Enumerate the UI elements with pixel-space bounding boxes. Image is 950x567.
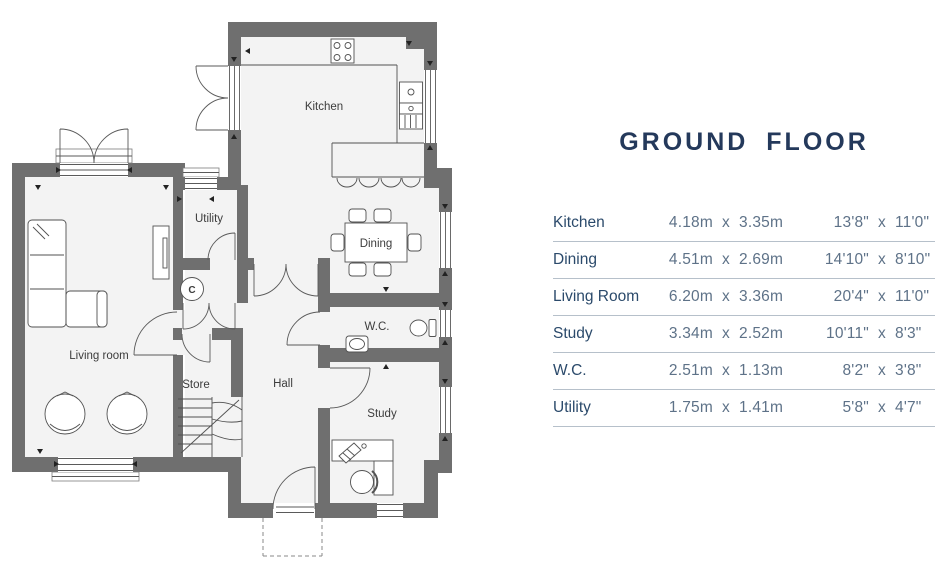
patio-door-threshold xyxy=(228,66,241,130)
imperial-width: 13'8" xyxy=(821,214,869,232)
dimension-row: W.C. 2.51m x 1.13m 8'2" x 3'8" xyxy=(553,353,935,390)
imperial-depth: 11'0" xyxy=(895,214,935,232)
imperial-width: 8'2" xyxy=(821,362,869,380)
porch-outline xyxy=(263,518,322,556)
hob xyxy=(331,39,354,63)
dimension-separator: x xyxy=(869,214,895,232)
metric-depth: 1.41m xyxy=(739,399,797,417)
room-name: Kitchen xyxy=(553,214,655,232)
dimensions-panel: GROUND FLOOR Kitchen 4.18m x 3.35m 13'8"… xyxy=(553,128,935,427)
dining-label: Dining xyxy=(360,238,393,250)
dimension-separator: x xyxy=(713,325,739,343)
dimension-separator: x xyxy=(869,399,895,417)
dimension-row: Living Room 6.20m x 3.36m 20'4" x 11'0" xyxy=(553,279,935,316)
metric-width: 6.20m xyxy=(655,288,713,306)
hall-label: Hall xyxy=(273,378,293,390)
imperial-depth: 11'0" xyxy=(895,288,935,306)
imperial-width: 5'8" xyxy=(821,399,869,417)
kitchen-patio-doors xyxy=(196,66,228,130)
floorplan-page: Kitchen Utility Dining Living room W.C. … xyxy=(0,0,950,567)
imperial-width: 20'4" xyxy=(821,288,869,306)
dimension-row: Kitchen 4.18m x 3.35m 13'8" x 11'0" xyxy=(553,205,935,242)
metric-depth: 1.13m xyxy=(739,362,797,380)
dimension-separator: x xyxy=(713,399,739,417)
toilet xyxy=(410,320,436,337)
wc-label: W.C. xyxy=(365,321,390,333)
room-name: Dining xyxy=(553,251,655,269)
metric-depth: 2.69m xyxy=(739,251,797,269)
metric-width: 4.18m xyxy=(655,214,713,232)
metric-width: 4.51m xyxy=(655,251,713,269)
kitchen-label: Kitchen xyxy=(305,101,343,113)
imperial-depth: 4'7" xyxy=(895,399,935,417)
dimension-separator: x xyxy=(869,325,895,343)
dimensions-table: Kitchen 4.18m x 3.35m 13'8" x 11'0" Dini… xyxy=(553,205,935,427)
metric-width: 2.51m xyxy=(655,362,713,380)
study-side-window xyxy=(439,387,452,433)
room-name: Study xyxy=(553,325,655,343)
kitchen-window xyxy=(424,70,437,143)
dimension-separator: x xyxy=(713,214,739,232)
imperial-depth: 3'8" xyxy=(895,362,935,380)
dimension-separator: x xyxy=(869,362,895,380)
dining-window xyxy=(439,212,452,268)
tv-unit xyxy=(153,226,169,279)
study-label: Study xyxy=(367,408,397,420)
dimension-separator: x xyxy=(869,288,895,306)
dimension-row: Study 3.34m x 2.52m 10'11" x 8'3" xyxy=(553,316,935,353)
metric-width: 1.75m xyxy=(655,399,713,417)
store-label: Store xyxy=(182,379,210,391)
metric-depth: 3.36m xyxy=(739,288,797,306)
dimension-separator: x xyxy=(713,288,739,306)
page-title: GROUND FLOOR xyxy=(553,128,935,157)
room-name: W.C. xyxy=(553,362,655,380)
metric-depth: 3.35m xyxy=(739,214,797,232)
room-name: Living Room xyxy=(553,288,655,306)
living-room-window xyxy=(52,457,139,481)
front-door-threshold xyxy=(273,503,315,518)
living-room-label: Living room xyxy=(69,350,128,362)
sink xyxy=(400,82,423,129)
dimension-separator: x xyxy=(713,362,739,380)
basin xyxy=(346,336,368,352)
cylinder-label: C xyxy=(188,285,195,296)
study-front-window xyxy=(377,503,403,518)
utility-window xyxy=(183,168,219,190)
imperial-width: 10'11" xyxy=(821,325,869,343)
metric-depth: 2.52m xyxy=(739,325,797,343)
imperial-width: 14'10" xyxy=(821,251,869,269)
dimension-separator: x xyxy=(713,251,739,269)
utility-label: Utility xyxy=(195,213,223,225)
floor-plan-drawing: Kitchen Utility Dining Living room W.C. … xyxy=(0,0,480,567)
room-name: Utility xyxy=(553,399,655,417)
imperial-depth: 8'3" xyxy=(895,325,935,343)
metric-width: 3.34m xyxy=(655,325,713,343)
wc-window xyxy=(439,310,452,337)
dimension-row: Utility 1.75m x 1.41m 5'8" x 4'7" xyxy=(553,390,935,427)
dimension-row: Dining 4.51m x 2.69m 14'10" x 8'10" xyxy=(553,242,935,279)
imperial-depth: 8'10" xyxy=(895,251,935,269)
dimension-separator: x xyxy=(869,251,895,269)
